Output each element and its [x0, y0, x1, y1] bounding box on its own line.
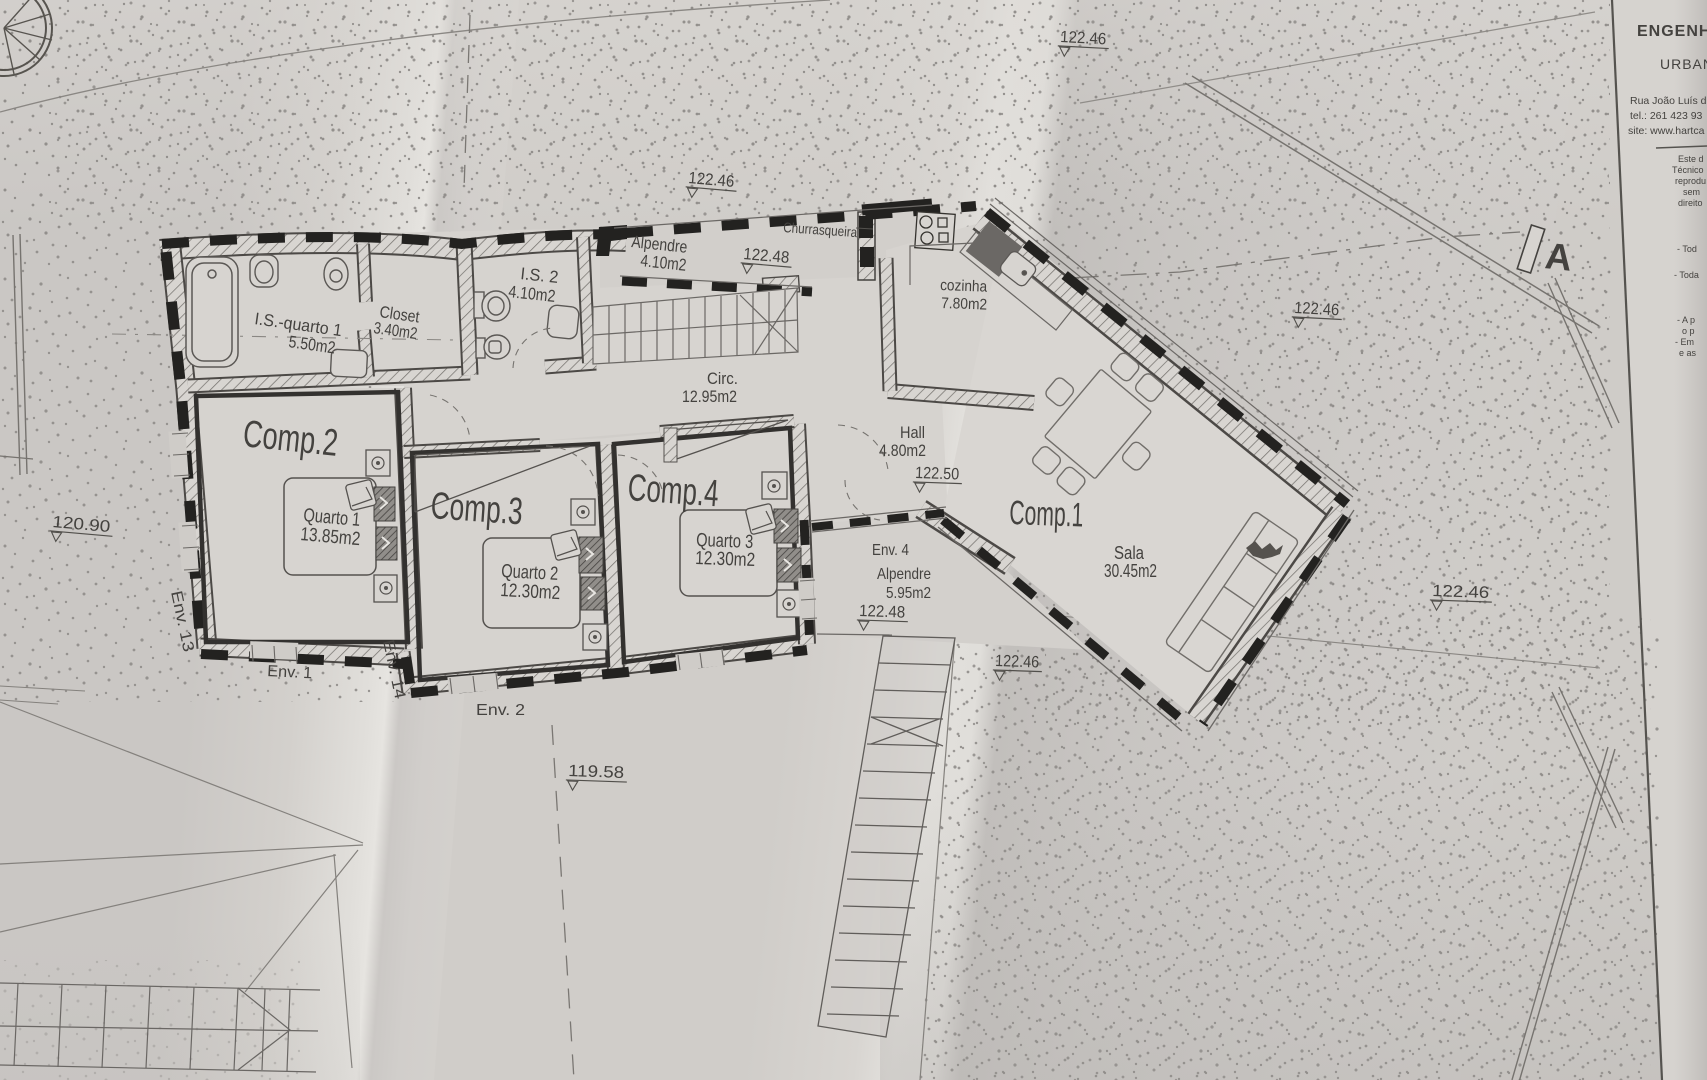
- svg-text:sem: sem: [1683, 187, 1700, 197]
- svg-text:cozinha: cozinha: [940, 277, 988, 296]
- svg-text:12.95m2: 12.95m2: [682, 387, 737, 406]
- svg-text:122.46: 122.46: [1060, 28, 1107, 48]
- svg-text:Este d: Este d: [1678, 154, 1704, 164]
- svg-text:Env. 1: Env. 1: [267, 663, 313, 682]
- svg-text:- Em: - Em: [1675, 337, 1694, 347]
- svg-text:Env. 4: Env. 4: [872, 542, 909, 559]
- svg-text:- Tod: - Tod: [1677, 244, 1697, 254]
- svg-text:122.48: 122.48: [859, 602, 906, 622]
- svg-text:Env. 2: Env. 2: [476, 702, 525, 719]
- svg-text:122.46: 122.46: [1432, 582, 1490, 602]
- svg-text:reprodu: reprodu: [1675, 176, 1706, 186]
- svg-text:direito: direito: [1678, 198, 1703, 208]
- svg-text:- Toda: - Toda: [1674, 270, 1699, 280]
- svg-text:119.58: 119.58: [568, 762, 625, 782]
- svg-text:Técnico: Técnico: [1672, 165, 1704, 175]
- svg-text:Hall: Hall: [900, 423, 925, 442]
- svg-text:5.95m2: 5.95m2: [886, 585, 931, 602]
- svg-text:12.30m2: 12.30m2: [500, 580, 561, 604]
- svg-text:30.45m2: 30.45m2: [1104, 561, 1157, 581]
- svg-text:4.80m2: 4.80m2: [879, 441, 926, 460]
- svg-text:site: www.hartca: site: www.hartca: [1628, 125, 1705, 137]
- svg-text:o p: o p: [1682, 326, 1695, 336]
- svg-text:12.30m2: 12.30m2: [695, 548, 756, 571]
- svg-text:e as: e as: [1679, 348, 1697, 358]
- svg-text:- A p: - A p: [1677, 315, 1695, 325]
- svg-text:URBANIS: URBANIS: [1660, 56, 1707, 72]
- svg-text:Comp.4: Comp.4: [626, 467, 720, 515]
- svg-text:Circ.: Circ.: [707, 369, 738, 388]
- svg-text:Comp.1: Comp.1: [1009, 494, 1084, 535]
- svg-text:A: A: [1543, 235, 1574, 279]
- svg-text:ENGENHA: ENGENHA: [1637, 23, 1707, 40]
- svg-text:Rua João Luís d: Rua João Luís d: [1630, 95, 1707, 107]
- svg-text:122.46: 122.46: [1294, 299, 1340, 319]
- svg-text:Alpendre: Alpendre: [877, 566, 931, 583]
- svg-text:tel.: 261 423 93: tel.: 261 423 93: [1630, 110, 1703, 122]
- svg-text:7.80m2: 7.80m2: [941, 295, 988, 314]
- svg-text:Sala: Sala: [1114, 543, 1145, 563]
- svg-text:122.50: 122.50: [915, 464, 960, 484]
- svg-text:Comp.3: Comp.3: [429, 485, 524, 533]
- svg-text:122.46: 122.46: [995, 652, 1040, 672]
